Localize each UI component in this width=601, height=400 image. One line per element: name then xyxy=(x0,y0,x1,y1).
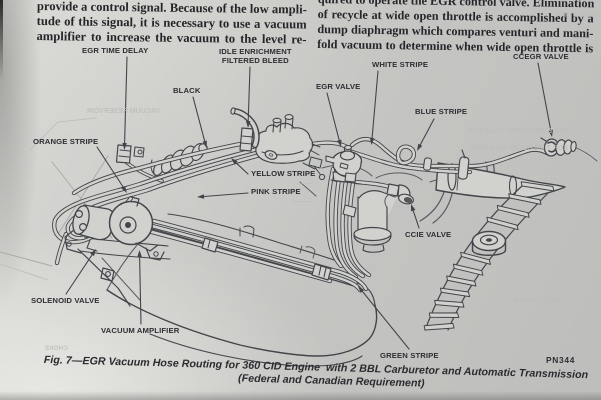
svg-text:VACUUM RESERVOIR: VACUUM RESERVOIR xyxy=(87,108,160,115)
svg-text:———: ——— xyxy=(291,199,312,206)
svg-text:CHOKE: CHOKE xyxy=(44,345,68,352)
svg-text:IDLE ENRICHMENT SOLENOID: IDLE ENRICHMENT SOLENOID xyxy=(467,128,570,135)
svg-text:GREEN STRIPE: GREEN STRIPE xyxy=(514,298,566,305)
svg-text:WHITE STRIPE: WHITE STRIPE xyxy=(553,12,600,19)
svg-text:EGR TIME DELAY SOLENOID: EGR TIME DELAY SOLENOID xyxy=(471,145,568,152)
